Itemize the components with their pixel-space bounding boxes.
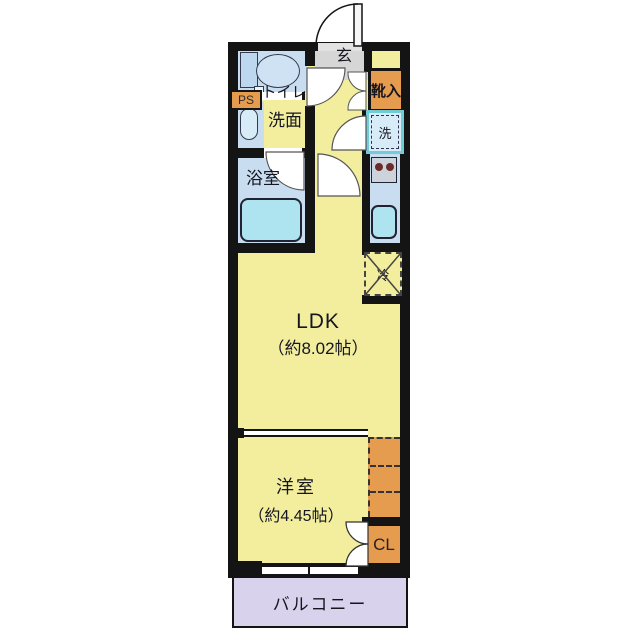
closet-label: CL [373,535,395,555]
closet: CL [368,524,400,565]
toilet-label: トイレ [258,85,310,102]
washstand-basin-fixture [240,108,258,140]
bedroom-label: 洋室 [226,478,366,498]
balcony-area: バルコニー [232,576,408,628]
burner-icon [375,163,383,171]
sliding-partition [244,429,368,437]
wall [228,243,315,253]
balcony-label: バルコニー [273,590,368,615]
window-center-tick [308,563,310,578]
shoe-cabinet-label: 靴入 [371,80,401,101]
entrance-door-leaf [354,4,362,46]
kitchen-sink-fixture [371,205,397,239]
wall [238,561,262,577]
stove-fixture [371,157,397,183]
fridge-label: 冷 [376,265,389,284]
fridge-space: 冷 [364,252,402,296]
ldk-size-label: （約8.02帖） [236,340,400,359]
floorplan-canvas: バルコニー 靴入 洗 冷 PS CL [0,0,640,640]
shelf-line [370,491,400,493]
shoe-cabinet: 靴入 [368,68,404,112]
wall [228,428,244,438]
washroom-label: 洗面 [262,112,308,131]
storage-shelf-strip [368,437,400,517]
wall [305,42,315,66]
entrance-door-arc [316,4,358,46]
door-opening [264,148,302,158]
pipe-shaft-label: PS [238,93,254,107]
wall [362,517,410,526]
ldk-label: LDK [236,310,400,333]
bedroom-size-label: （約4.45帖） [226,508,366,526]
wall [362,295,410,304]
bathtub-fixture [240,198,302,242]
bathroom-label: 浴室 [240,170,286,189]
washer-space: 洗 [366,110,404,154]
toilet-bowl-fixture [256,54,300,88]
genkan-label: 玄 [330,48,358,66]
washer-label: 洗 [378,123,391,142]
burner-icon [386,163,394,171]
shelf-line [370,465,400,467]
balcony-window [262,565,358,576]
